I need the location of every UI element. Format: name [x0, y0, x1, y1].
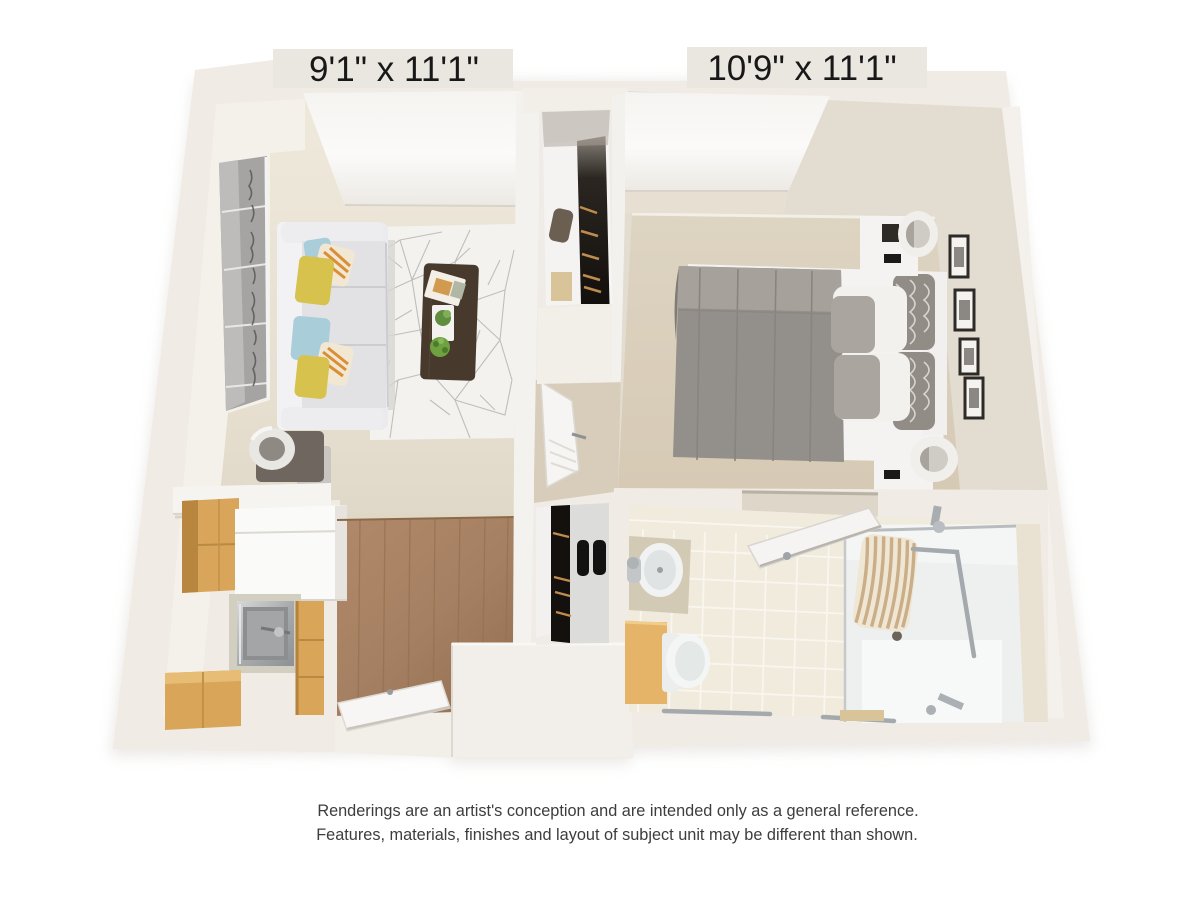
svg-text:Renderings are an artist's con: Renderings are an artist's conception an… — [317, 802, 918, 820]
svg-text:9'1" x 11'1": 9'1" x 11'1" — [309, 50, 479, 89]
svg-text:Features, materials, finishes: Features, materials, finishes and layout… — [316, 826, 918, 844]
svg-text:10'9" x 11'1": 10'9" x 11'1" — [707, 49, 896, 88]
